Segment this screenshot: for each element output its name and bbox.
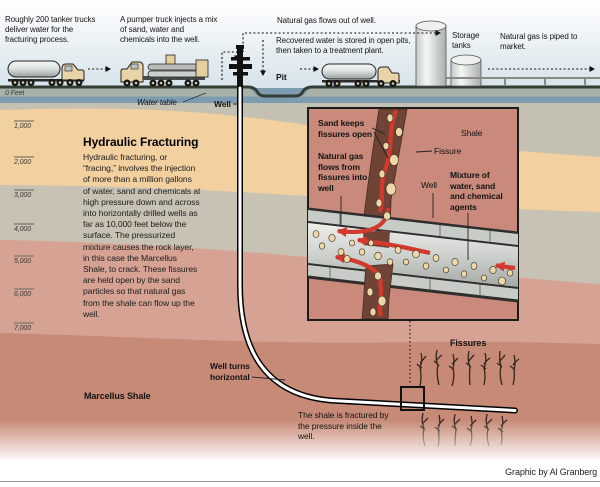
fracking-infographic: Roughly 200 tanker trucks deliver water … bbox=[0, 0, 600, 487]
credit-line: Graphic by Al Granberg bbox=[420, 467, 597, 478]
recovered-caption: Recovered water is stored in open pits, … bbox=[276, 36, 416, 56]
depth-1000: 1,000 bbox=[14, 123, 31, 132]
depth-0: 0 Feet bbox=[5, 90, 24, 99]
depth-7000: 7,000 bbox=[14, 325, 31, 334]
depth-2000: 2,000 bbox=[14, 159, 31, 168]
tanker-caption: Roughly 200 tanker trucks deliver water … bbox=[5, 15, 107, 45]
well-surface-label: Well bbox=[214, 99, 231, 110]
depth-5000: 5,000 bbox=[14, 258, 31, 267]
fractured-caption: The shale is fractured by the pressure i… bbox=[298, 410, 400, 442]
pit-label: Pit bbox=[276, 72, 287, 83]
gas-out-caption: Natural gas flows out of well. bbox=[277, 16, 452, 26]
piped-caption: Natural gas is piped to market. bbox=[500, 32, 588, 52]
inset-fissure-label: Fissure bbox=[434, 146, 461, 157]
depth-3000: 3,000 bbox=[14, 192, 31, 201]
inset-shale-label: Shale bbox=[461, 128, 482, 139]
water-table-label: Water table bbox=[137, 98, 177, 108]
inset-well-label: Well bbox=[421, 180, 437, 191]
inset-diagram bbox=[308, 108, 518, 320]
storage-tanks-label: Storage tanks bbox=[452, 31, 494, 51]
body-paragraph: Hydraulic fracturing, or “fracing,” invo… bbox=[83, 152, 201, 320]
well-turns-label: Well turns horizontal bbox=[210, 361, 266, 382]
fissures-label: Fissures bbox=[450, 338, 486, 349]
inset-mixture-label: Mixture of water, sand and chemical agen… bbox=[450, 170, 508, 213]
inset-gas-flow-label: Natural gas flows from fissures into wel… bbox=[318, 151, 370, 194]
depth-4000: 4,000 bbox=[14, 226, 31, 235]
depth-6000: 6,000 bbox=[14, 291, 31, 300]
pumper-caption: A pumper truck injects a mix of sand, wa… bbox=[120, 15, 220, 45]
marcellus-label: Marcellus Shale bbox=[84, 391, 151, 402]
main-heading: Hydraulic Fracturing bbox=[83, 135, 198, 150]
inset-sand-label: Sand keeps fissures open bbox=[318, 118, 380, 139]
water-table-stripe bbox=[0, 97, 600, 104]
